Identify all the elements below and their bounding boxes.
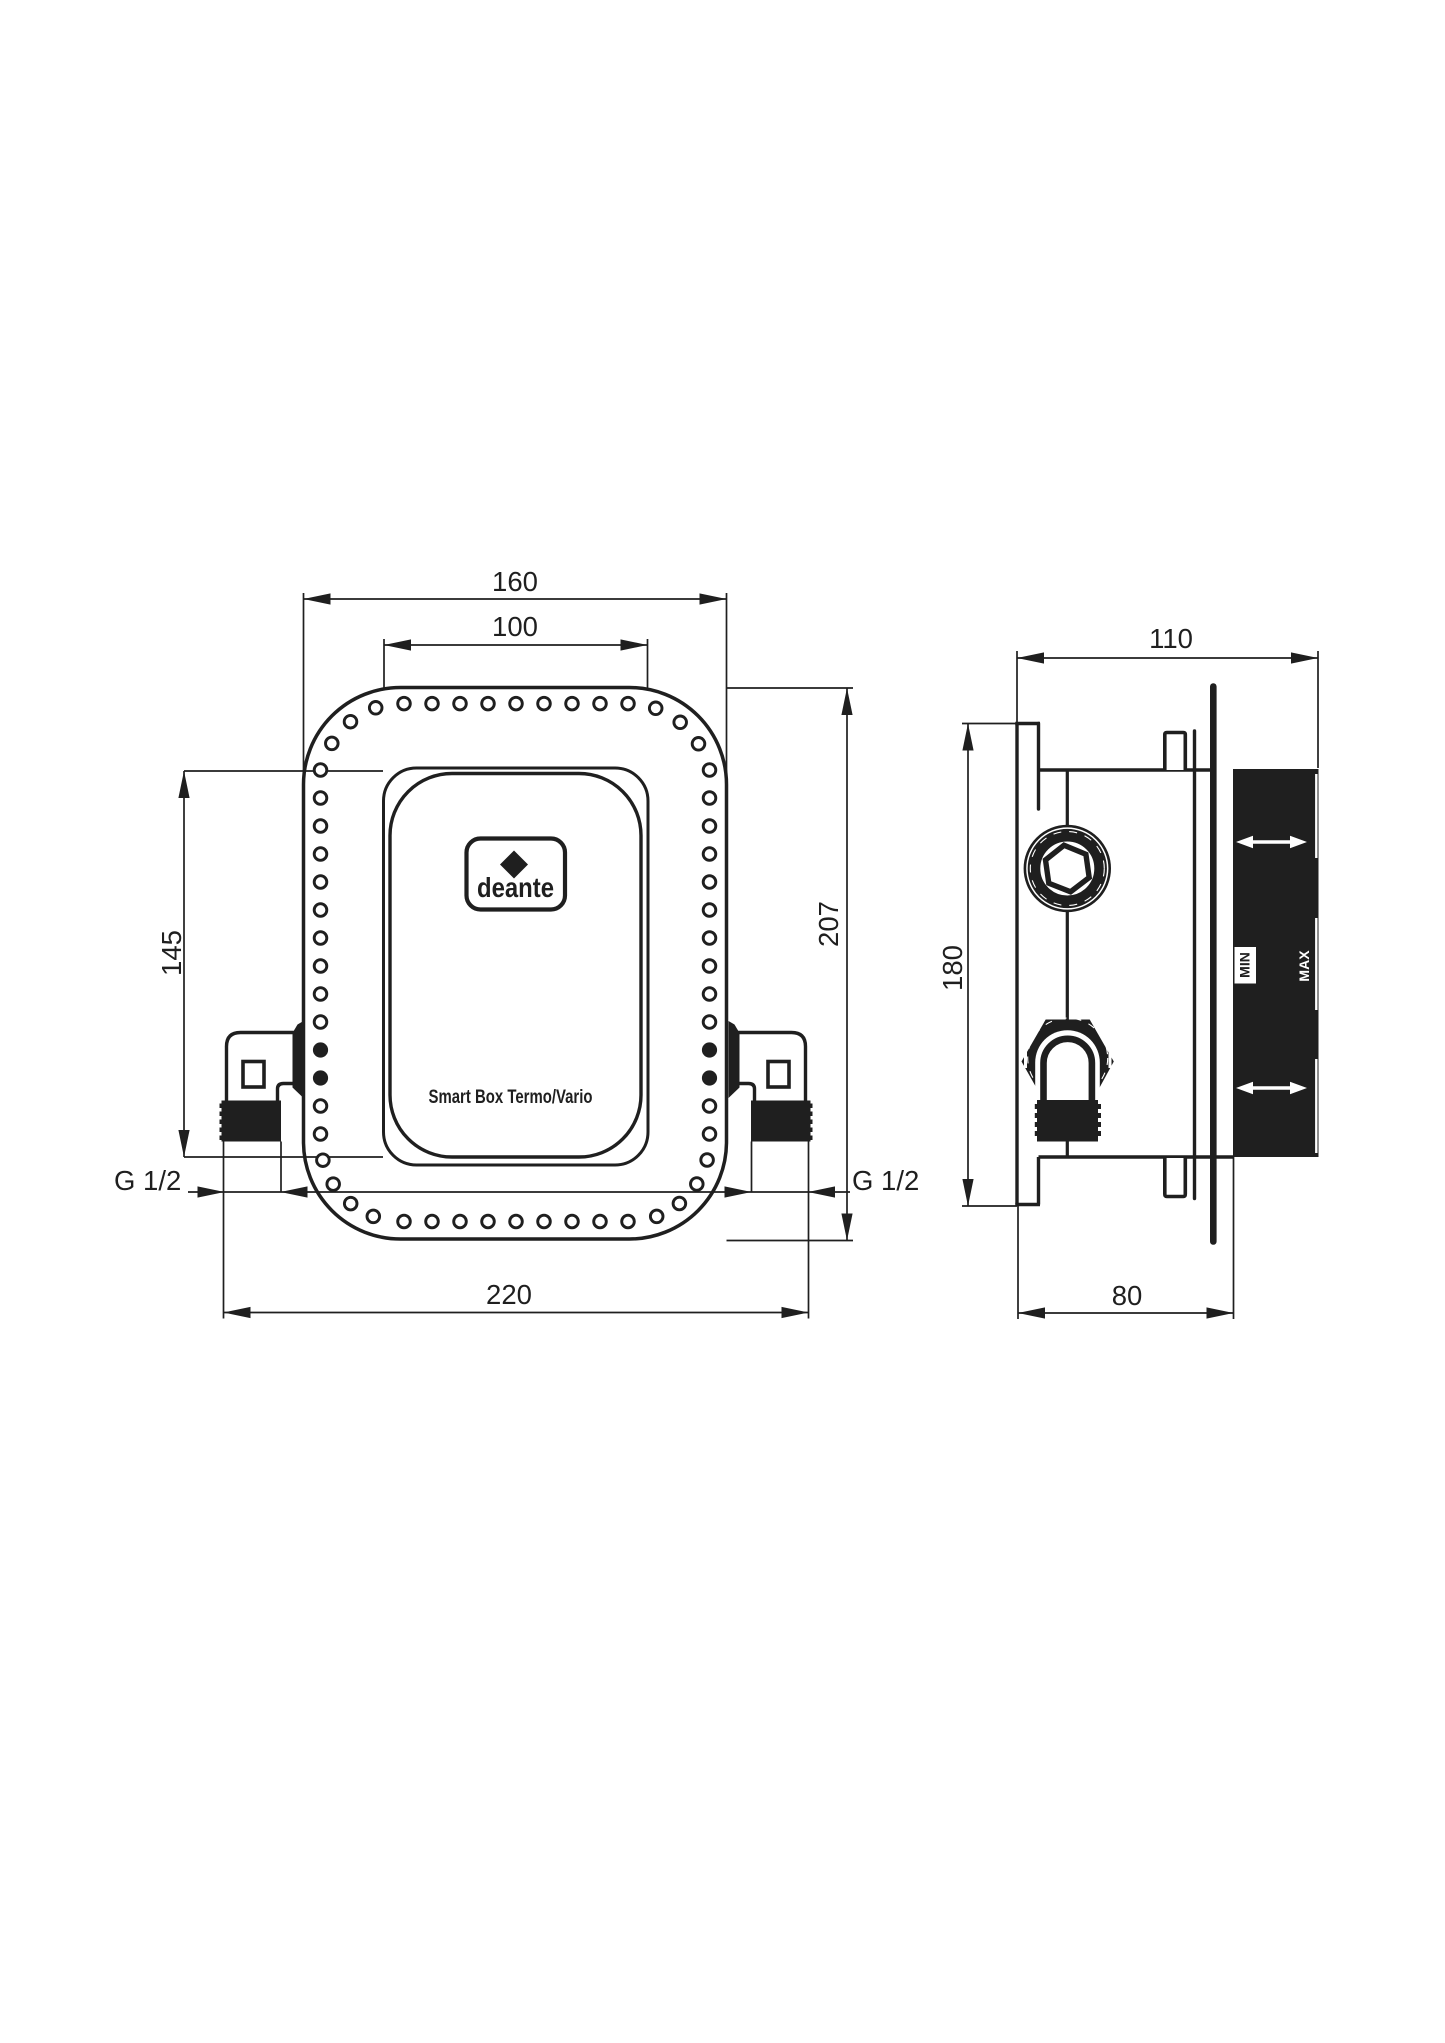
svg-text:MIN: MIN <box>1237 952 1253 978</box>
svg-text:MAX: MAX <box>1296 950 1312 982</box>
svg-text:220: 220 <box>486 1279 532 1310</box>
svg-text:G 1/2: G 1/2 <box>852 1165 919 1196</box>
svg-text:180: 180 <box>937 945 968 991</box>
svg-text:80: 80 <box>1112 1280 1143 1311</box>
svg-text:145: 145 <box>156 930 187 976</box>
svg-text:207: 207 <box>813 901 844 947</box>
svg-text:G 1/2: G 1/2 <box>114 1165 181 1196</box>
svg-text:Smart Box Termo/Vario: Smart Box Termo/Vario <box>429 1087 593 1108</box>
svg-text:160: 160 <box>492 566 538 597</box>
svg-text:deante: deante <box>477 872 554 903</box>
svg-text:100: 100 <box>492 611 538 642</box>
svg-text:110: 110 <box>1149 623 1193 654</box>
